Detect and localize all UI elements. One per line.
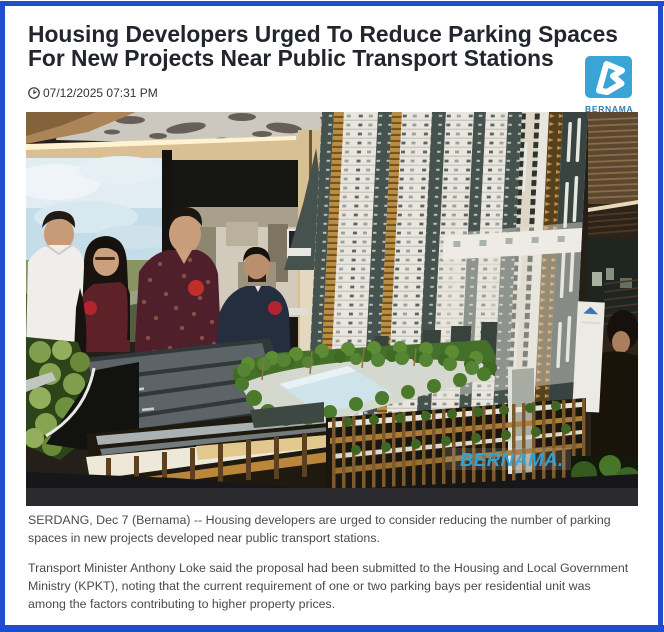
- svg-text:BERNAMA.: BERNAMA.: [460, 449, 564, 470]
